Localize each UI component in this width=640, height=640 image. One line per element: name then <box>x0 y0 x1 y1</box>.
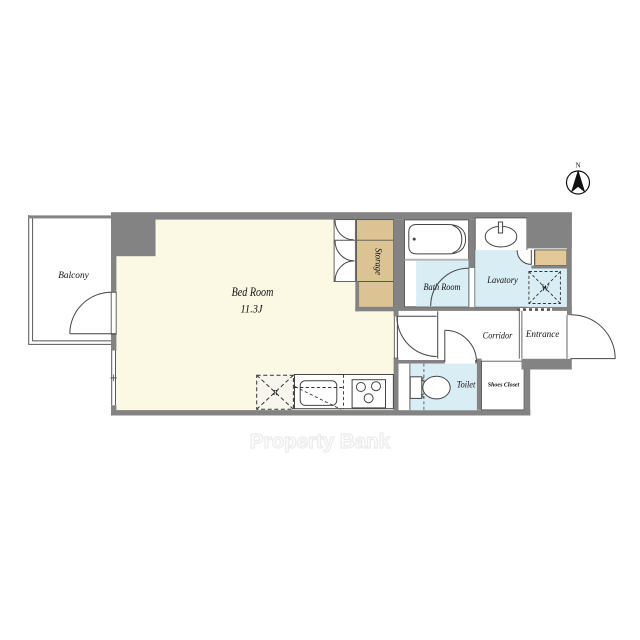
svg-text:Entrance: Entrance <box>525 330 559 340</box>
svg-text:Shoes Closet: Shoes Closet <box>488 381 520 388</box>
svg-text:R: R <box>272 388 278 397</box>
svg-text:Lavatory: Lavatory <box>486 276 518 286</box>
svg-text:Storage: Storage <box>374 248 384 275</box>
svg-text:Bed Room: Bed Room <box>232 284 274 299</box>
svg-text:Balcony: Balcony <box>58 271 89 281</box>
svg-text:N: N <box>575 162 580 170</box>
svg-text:Property Bank: Property Bank <box>250 430 391 453</box>
svg-text:Toilet: Toilet <box>457 381 476 391</box>
svg-text:11.3J: 11.3J <box>241 302 264 316</box>
svg-text:Bath Room: Bath Room <box>424 283 461 293</box>
svg-text:Corridor: Corridor <box>483 332 513 342</box>
